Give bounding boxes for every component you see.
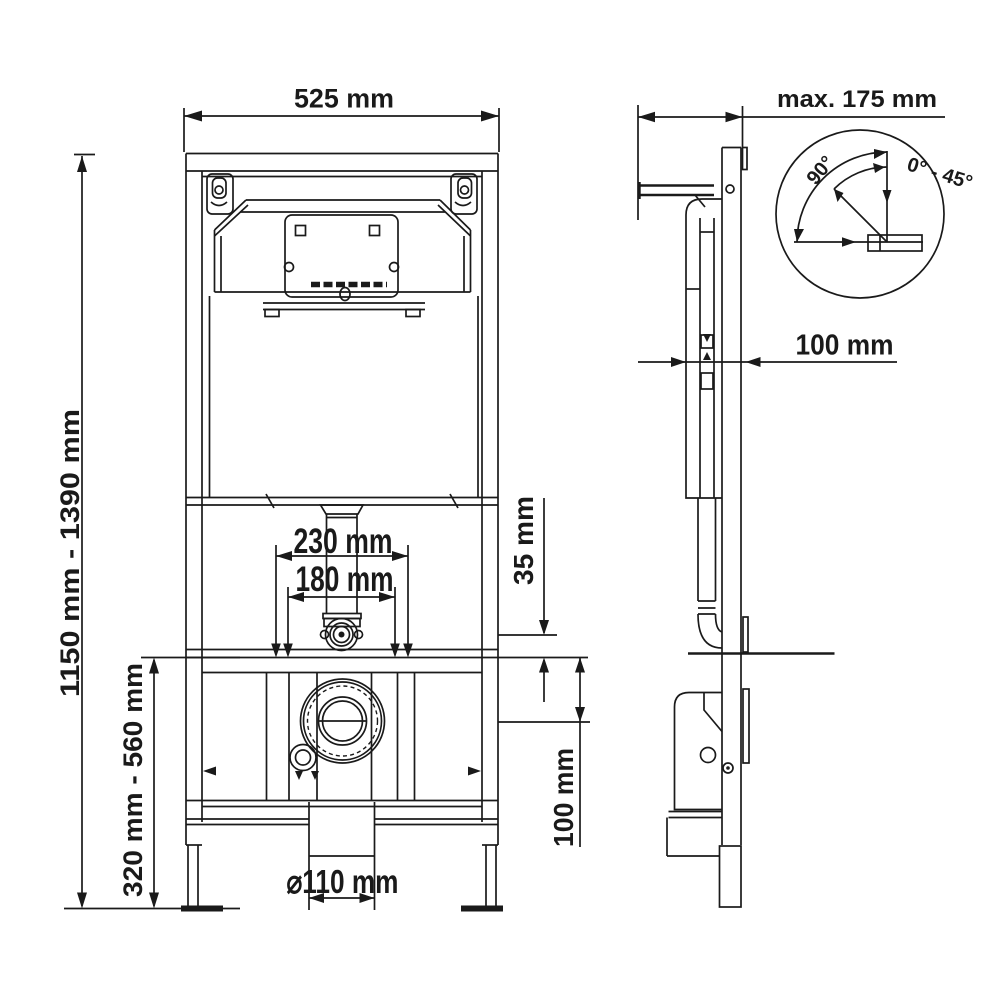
svg-text:100 mm: 100 mm [548,748,579,847]
svg-text:35 mm: 35 mm [508,496,539,585]
svg-text:⌀110 mm: ⌀110 mm [287,863,399,900]
svg-text:525 mm: 525 mm [294,84,394,114]
svg-text:180 mm: 180 mm [296,560,394,599]
svg-text:320 mm - 560 mm: 320 mm - 560 mm [118,663,148,897]
svg-text:1150 mm - 1390 mm: 1150 mm - 1390 mm [55,409,85,697]
svg-text:100 mm: 100 mm [796,330,894,362]
svg-text:max. 175 mm: max. 175 mm [777,86,937,113]
